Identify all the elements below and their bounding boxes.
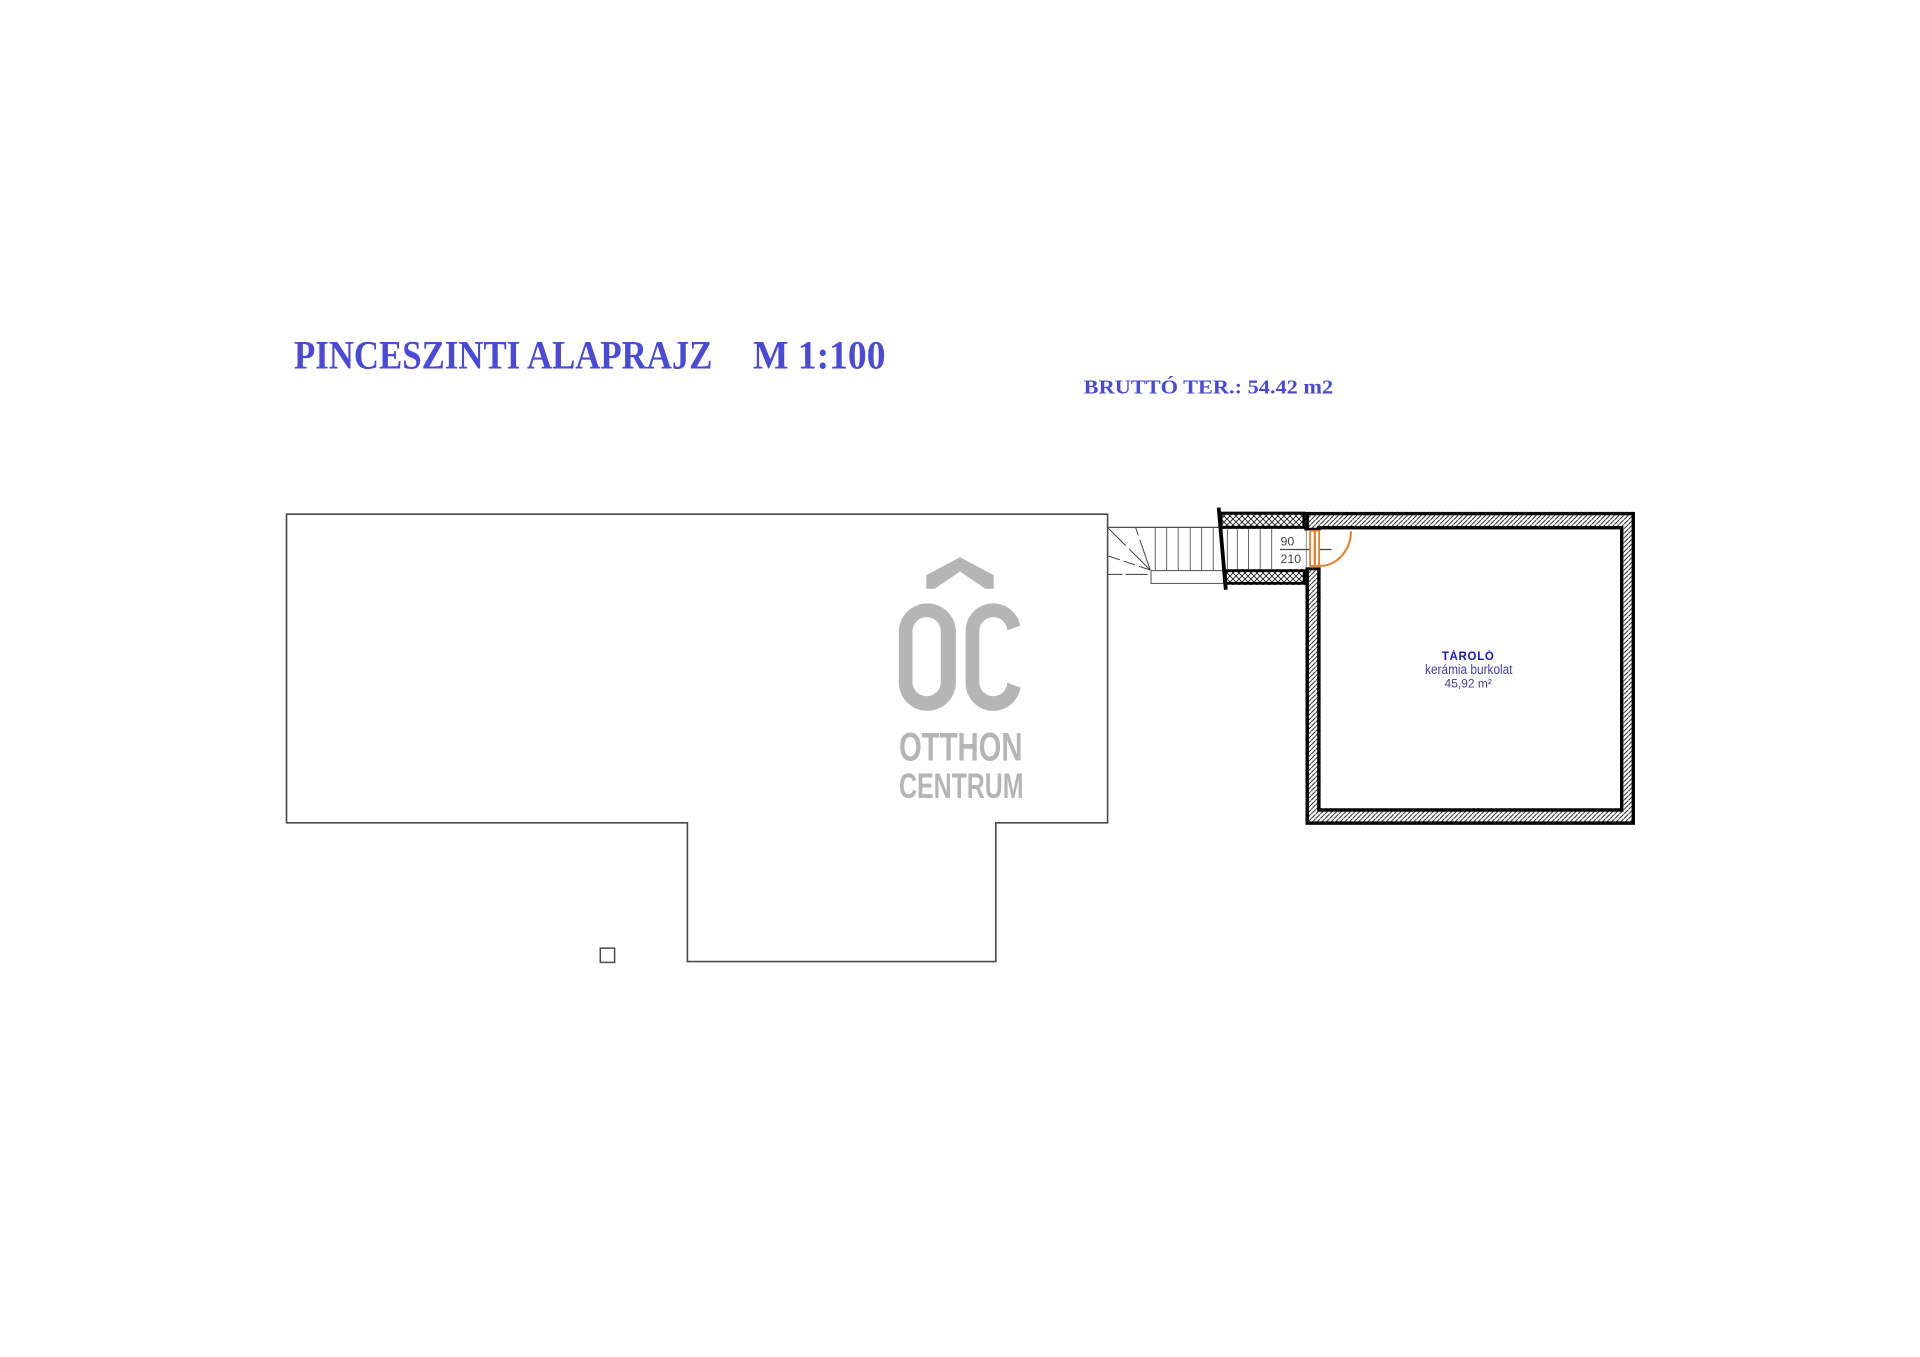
- svg-text:CENTRUM: CENTRUM: [899, 766, 1024, 806]
- svg-text:PINCESZINTI ALAPRAJZ: PINCESZINTI ALAPRAJZ: [294, 333, 713, 378]
- svg-text:210: 210: [1281, 552, 1302, 566]
- svg-text:BRUTTÓ TER.: 54.42 m2: BRUTTÓ TER.: 54.42 m2: [1084, 375, 1334, 399]
- svg-text:kerámia burkolat: kerámia burkolat: [1425, 662, 1513, 677]
- svg-text:45,92 m²: 45,92 m²: [1445, 676, 1492, 690]
- svg-text:90: 90: [1281, 534, 1295, 548]
- svg-text:OTTHON: OTTHON: [899, 726, 1023, 770]
- svg-text:M 1:100: M 1:100: [753, 333, 886, 378]
